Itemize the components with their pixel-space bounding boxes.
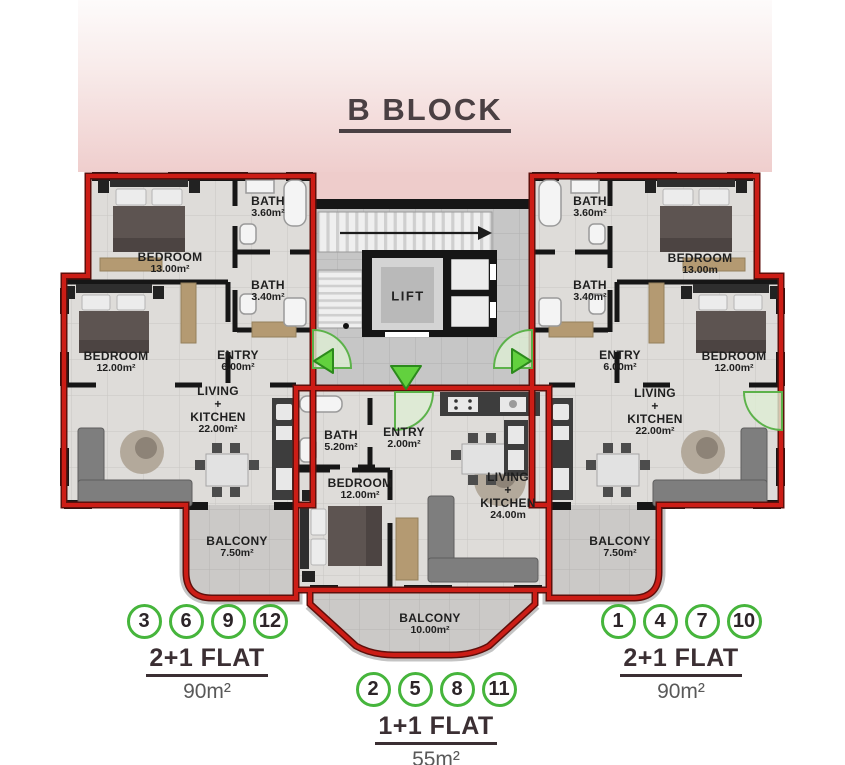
unit-number-badge: 10 bbox=[727, 604, 762, 639]
unit-number-badge: 3 bbox=[127, 604, 162, 639]
center-balcony-floor bbox=[310, 590, 535, 655]
unit-number-badge: 12 bbox=[253, 604, 288, 639]
flat-size-label: 55m² bbox=[341, 748, 531, 765]
legend-center-flats: 2 5 8 11 1+1 FLAT 55m² bbox=[341, 672, 531, 765]
flat-size-label: 90m² bbox=[112, 680, 302, 704]
lift-shaft bbox=[362, 250, 497, 337]
unit-numbers: 3 6 9 12 bbox=[112, 604, 302, 639]
unit-number-badge: 7 bbox=[685, 604, 720, 639]
flat-type-label: 2+1 FLAT bbox=[586, 644, 776, 677]
unit-number-badge: 4 bbox=[643, 604, 678, 639]
floor-plan-page: B BLOCK bbox=[0, 0, 845, 765]
left-balcony-floor bbox=[186, 505, 296, 598]
right-balcony-floor bbox=[549, 505, 659, 598]
flat-type-label: 1+1 FLAT bbox=[341, 712, 531, 745]
unit-number-badge: 8 bbox=[440, 672, 475, 707]
unit-numbers: 1 4 7 10 bbox=[586, 604, 776, 639]
unit-numbers: 2 5 8 11 bbox=[341, 672, 531, 707]
unit-number-badge: 5 bbox=[398, 672, 433, 707]
legend-left-flats: 3 6 9 12 2+1 FLAT 90m² bbox=[112, 604, 302, 704]
unit-number-badge: 11 bbox=[482, 672, 517, 707]
unit-number-badge: 2 bbox=[356, 672, 391, 707]
flat-size-label: 90m² bbox=[586, 680, 776, 704]
unit-number-badge: 1 bbox=[601, 604, 636, 639]
unit-number-badge: 9 bbox=[211, 604, 246, 639]
flat-type-label: 2+1 FLAT bbox=[112, 644, 302, 677]
legend-right-flats: 1 4 7 10 2+1 FLAT 90m² bbox=[586, 604, 776, 704]
unit-number-badge: 6 bbox=[169, 604, 204, 639]
lift-label: LIFT bbox=[391, 289, 424, 304]
